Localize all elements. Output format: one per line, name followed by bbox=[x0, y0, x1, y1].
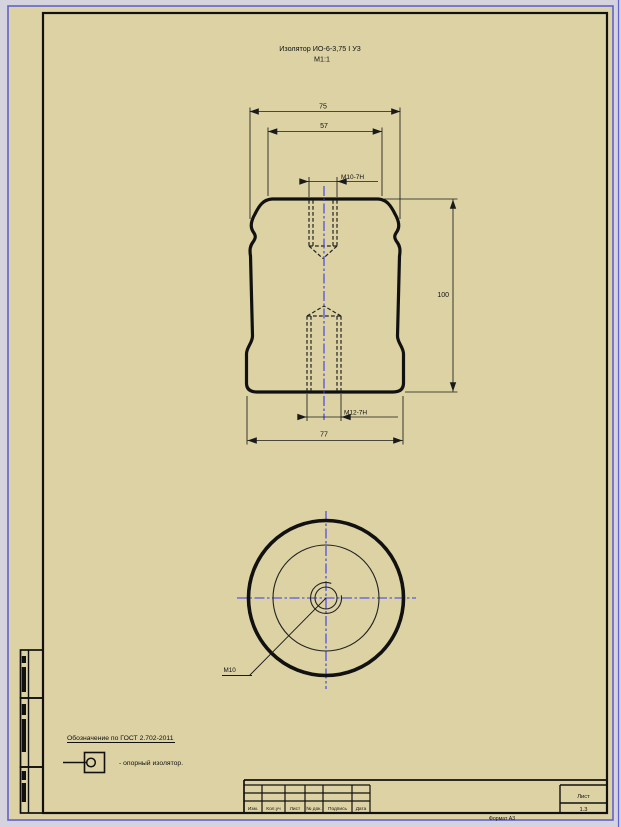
legend-heading: Обозначение по ГОСТ 2.702-2011 bbox=[67, 734, 174, 742]
col-koluch: Кол.уч bbox=[266, 806, 281, 812]
thread-callout-label: M10 bbox=[224, 667, 237, 674]
col-data: Дата bbox=[356, 806, 367, 812]
dim-100-label: 100 bbox=[437, 292, 449, 299]
col-list: Лист bbox=[290, 806, 301, 812]
dim-m12-label: M12-7H bbox=[344, 410, 367, 417]
sheet-label: Лист bbox=[577, 794, 590, 800]
vertical-stamp-text bbox=[22, 719, 26, 752]
vertical-stamp-text bbox=[22, 771, 26, 780]
sheet-number: 1.3 bbox=[579, 807, 587, 813]
paper-sheet bbox=[8, 6, 613, 820]
dim-m10-label: M10-7H bbox=[341, 174, 364, 181]
vertical-stamp-text bbox=[22, 704, 26, 715]
dim-57-label: 57 bbox=[320, 123, 328, 130]
cad-drawing-canvas: Изолятор ИО-6-3,75 I У3 М1:1 bbox=[0, 0, 621, 827]
format-note: Формат А3 bbox=[489, 816, 515, 822]
drawing-title: Изолятор ИО-6-3,75 I У3 bbox=[279, 44, 361, 53]
col-izm: Изм. bbox=[248, 806, 258, 812]
drawing-scale: М1:1 bbox=[314, 55, 330, 64]
vertical-stamp-text bbox=[22, 656, 26, 663]
legend-caption: - опорный изолятор. bbox=[119, 759, 183, 767]
col-ndok: № док. bbox=[306, 806, 321, 812]
dim-75-label: 75 bbox=[319, 104, 327, 111]
gost-drawing-sheet: Изолятор ИО-6-3,75 I У3 М1:1 bbox=[0, 0, 621, 827]
vertical-stamp-text bbox=[22, 667, 26, 692]
col-podpis: Подпись bbox=[328, 806, 347, 812]
dim-77-label: 77 bbox=[320, 432, 328, 439]
vertical-stamp-text bbox=[22, 783, 26, 802]
